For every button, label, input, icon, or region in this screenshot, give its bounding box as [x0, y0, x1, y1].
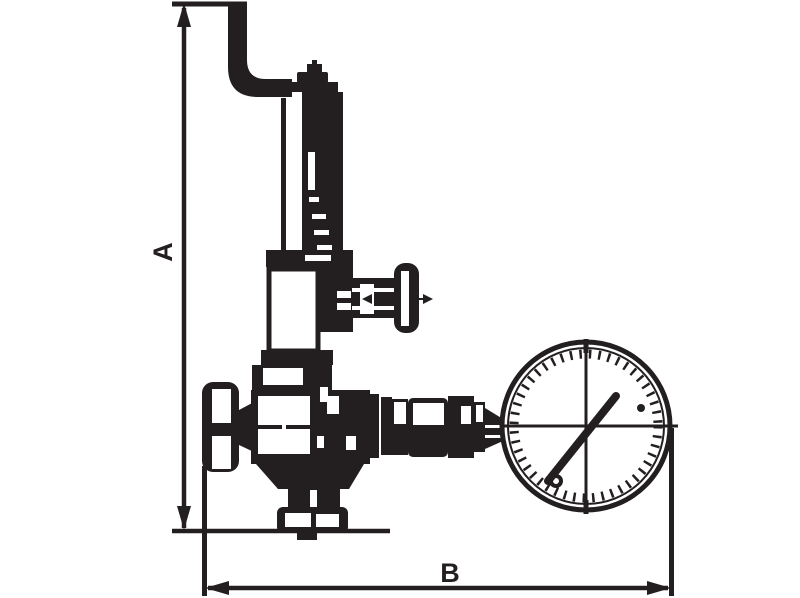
boss-slot	[337, 303, 351, 310]
fitting-face	[413, 403, 444, 425]
neck-gap	[310, 490, 317, 507]
body-slot	[320, 387, 328, 402]
side-valve	[352, 263, 433, 333]
fitting-face	[461, 406, 471, 424]
fitting-ring	[370, 394, 379, 458]
cap-collar	[288, 82, 338, 92]
outlet-nut-face	[285, 513, 311, 527]
needle-counterweight	[551, 476, 561, 486]
outlet-stub	[297, 533, 317, 540]
hex-face	[263, 368, 303, 385]
dim-a-arrow-down-icon	[177, 506, 191, 530]
fitting-ring	[448, 396, 474, 458]
dim-b-label: B	[440, 558, 460, 588]
spring-housing	[266, 92, 353, 267]
dim-a-arrow-up-icon	[177, 3, 191, 27]
valve-technical-drawing: A B	[0, 0, 800, 598]
outlet-nut-face	[316, 514, 339, 527]
bonnet-boss	[316, 267, 353, 332]
body-slot	[317, 436, 324, 448]
dim-a-label: A	[148, 242, 178, 262]
gauge-needle	[548, 396, 616, 481]
drawing-canvas: A B	[0, 0, 800, 598]
fitting-ring	[381, 397, 392, 455]
centerline-dash	[286, 425, 312, 429]
dim-b-arrow-right-icon	[647, 581, 671, 595]
handle-slot	[401, 271, 409, 326]
body-slot	[327, 396, 339, 414]
fitting-face	[476, 405, 483, 422]
fitting-face	[394, 402, 406, 424]
inlet-nut-face	[212, 436, 231, 469]
spring-coil-gap	[312, 214, 326, 219]
inlet-nut-face	[212, 389, 231, 423]
housing-slot	[308, 152, 315, 190]
body-taper	[256, 464, 364, 489]
spring-coil-gap	[317, 245, 332, 250]
adjustment-cap	[288, 60, 338, 92]
body-slot	[346, 436, 356, 450]
dim-b-arrow-left-icon	[205, 581, 229, 595]
flange-gap	[305, 255, 331, 261]
dial-dot	[637, 404, 645, 412]
valve-body	[251, 350, 370, 489]
boss-slot	[337, 291, 351, 298]
spring-coil-gap	[309, 197, 319, 202]
gauge-connection-fittings	[370, 394, 503, 458]
housing-left-wall	[281, 98, 286, 254]
relief-pipe	[228, 2, 292, 97]
bonnet	[269, 267, 353, 351]
hex-flange	[261, 350, 333, 365]
cap	[297, 72, 328, 83]
bonnet-chamber	[269, 269, 318, 351]
pressure-gauge	[502, 339, 678, 514]
outlet-connection	[277, 488, 348, 540]
centerline-tick-icon	[423, 294, 433, 304]
spring-coil-gap	[314, 230, 329, 235]
inlet-connection	[202, 382, 256, 472]
inlet-cone	[239, 401, 256, 453]
centerline-dash	[257, 425, 282, 429]
relief-pipe-tube	[228, 2, 292, 97]
